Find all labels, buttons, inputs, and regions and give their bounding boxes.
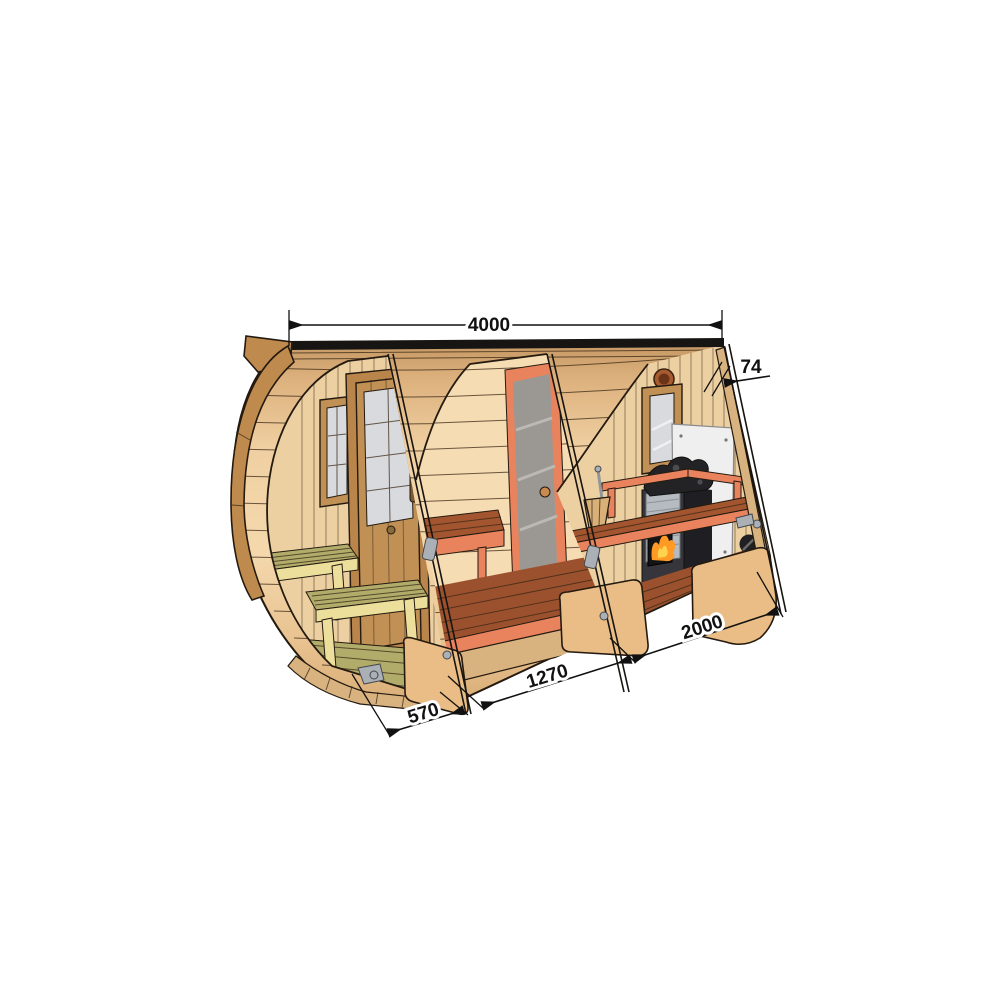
glass-door-knob — [540, 487, 550, 497]
dim-wall-thickness-label: 74 — [740, 357, 762, 378]
dim-overall-length-label: 4000 — [468, 315, 510, 336]
door-knob — [387, 526, 395, 534]
sauna-cutaway-illustration: 4000 74 2000 1270 570 — [0, 0, 1000, 1000]
barrel-sauna-technical-drawing: 4000 74 2000 1270 570 — [0, 0, 1000, 1000]
